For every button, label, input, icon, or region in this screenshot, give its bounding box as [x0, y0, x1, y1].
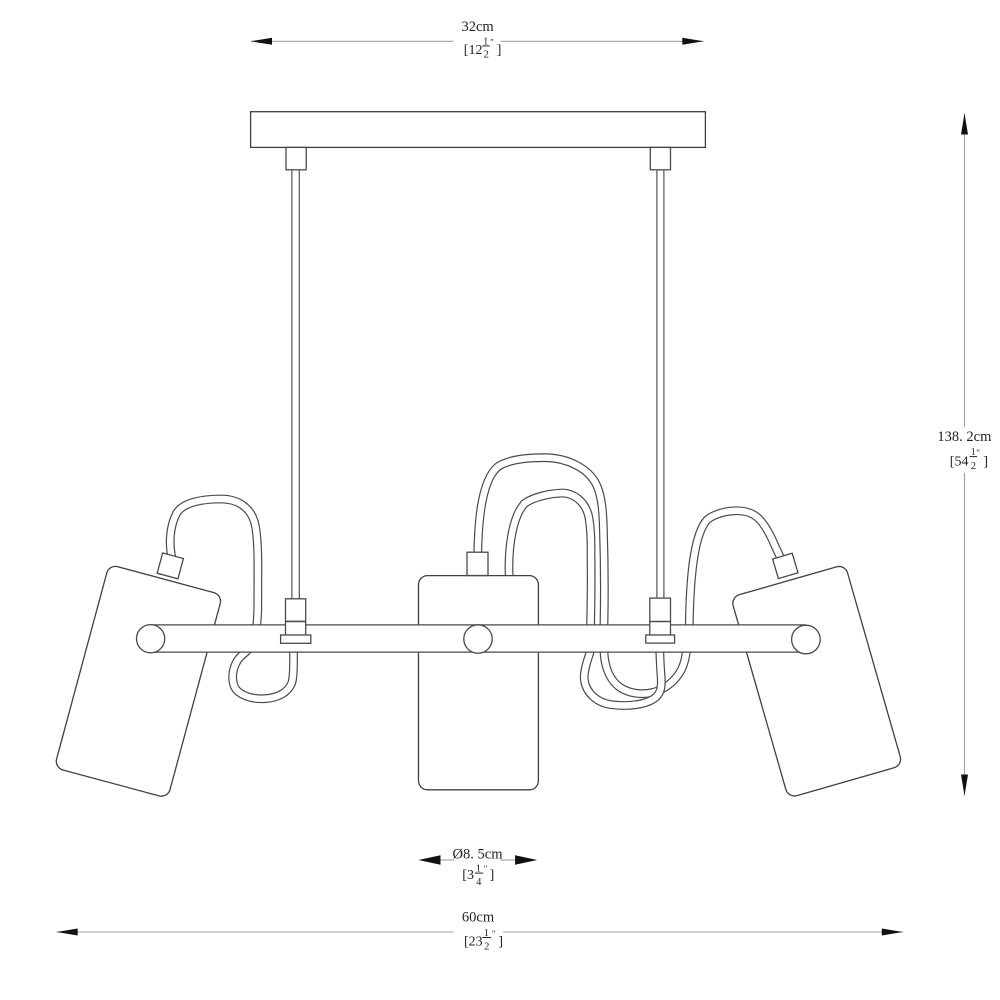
svg-text:[3: [3 [462, 868, 474, 883]
svg-text:[23: [23 [464, 935, 483, 950]
svg-text:″: ″ [484, 864, 488, 874]
svg-text:[12: [12 [464, 43, 483, 58]
svg-text:32cm: 32cm [461, 19, 494, 35]
svg-text:]: ] [490, 868, 495, 883]
svg-text:]: ] [497, 43, 502, 58]
svg-text:″: ″ [490, 37, 494, 47]
svg-text:]: ] [498, 935, 503, 950]
svg-text:″: ″ [492, 929, 496, 939]
svg-text:4: 4 [476, 877, 482, 888]
svg-text:138. 2cm: 138. 2cm [937, 429, 992, 445]
svg-text:[54: [54 [950, 455, 969, 470]
svg-text:2: 2 [484, 941, 489, 952]
svg-text:2: 2 [971, 461, 976, 472]
svg-text:]: ] [983, 455, 988, 470]
svg-text:2: 2 [484, 50, 489, 61]
svg-text:Ø8. 5cm: Ø8. 5cm [453, 846, 504, 862]
svg-text:″: ″ [976, 448, 980, 458]
svg-text:60cm: 60cm [462, 910, 495, 926]
